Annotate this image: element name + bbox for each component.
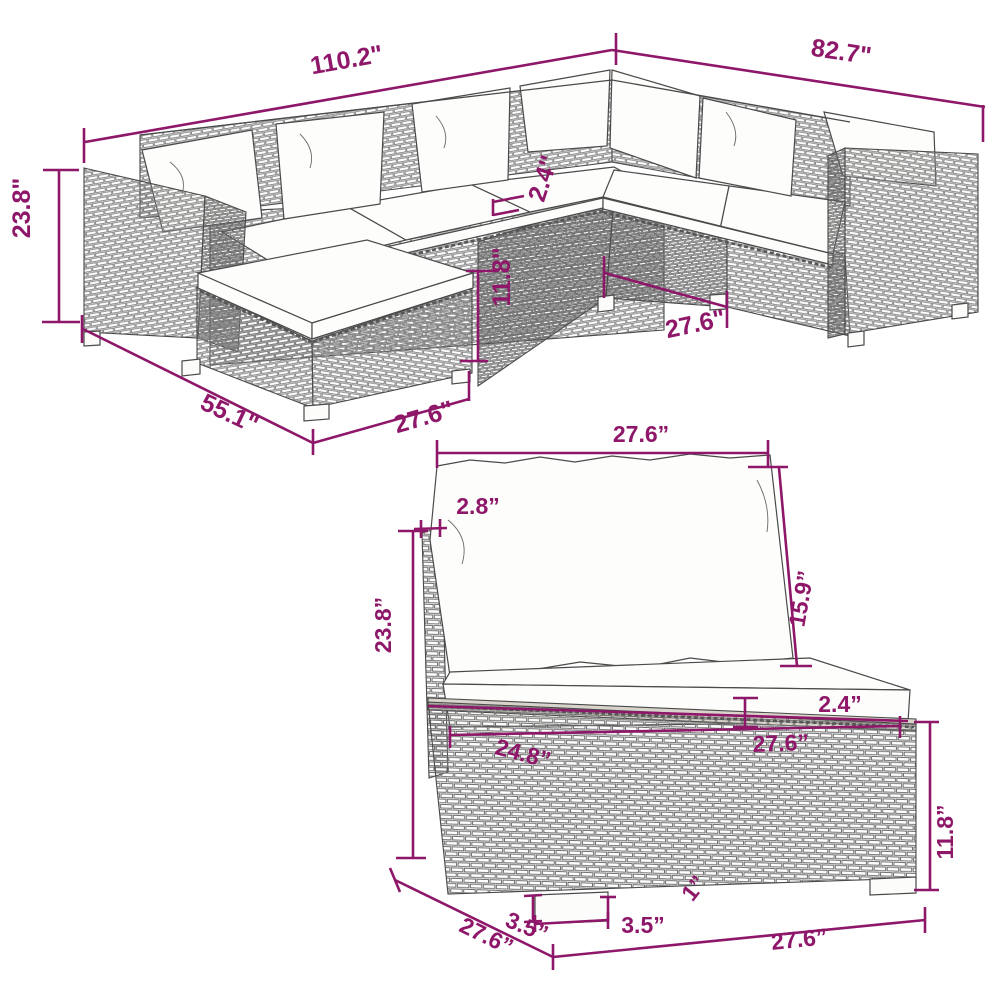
- right-armrest-front-edge: [828, 148, 845, 338]
- dim-total-depth-label: 82.7": [809, 34, 873, 71]
- pillow-2: [276, 112, 384, 219]
- dim-total-width-label: 110.2": [308, 40, 385, 80]
- dim-ottoman-width-label: 27.6": [391, 396, 457, 440]
- ottoman: [197, 240, 473, 408]
- pillow-3: [412, 88, 510, 192]
- dim-height-label: 23.8": [8, 178, 36, 239]
- dim-leg-width-label: 3.5”: [621, 912, 664, 938]
- dim-module-bottom-width-label: 27.6”: [770, 923, 829, 955]
- dim-seat-cushion-thickness-label: 2.4”: [818, 691, 861, 717]
- right-arm-front-leg: [848, 331, 864, 347]
- corner-base-leg: [598, 295, 614, 312]
- left-armrest: [84, 168, 205, 338]
- ottoman-left-leg: [182, 359, 200, 376]
- dim-section-width-label: 27.6": [663, 304, 728, 344]
- dim-chaise-depth-label: 55.1": [196, 388, 263, 439]
- dim-module-height: 23.8”: [370, 531, 428, 858]
- module-back-cushion: [430, 454, 793, 676]
- right-arm-back-leg: [952, 303, 968, 319]
- module-right-leg: [870, 877, 916, 895]
- diagram-svg: 110.2" 82.7" 23.8" 2.4" 11.8": [0, 0, 1000, 1000]
- module-drawing: [422, 454, 916, 924]
- dim-module-base-height: 11.8”: [914, 722, 958, 890]
- dimension-diagram: 110.2" 82.7" 23.8" 2.4" 11.8": [0, 0, 1000, 1000]
- dim-height: 23.8": [8, 170, 80, 322]
- dim-module-height-label: 23.8”: [370, 597, 396, 653]
- dim-frame-thickness-label: 2.8”: [456, 493, 499, 519]
- sectional-overview-drawing: [84, 70, 978, 421]
- dim-base-height-label: 11.8": [488, 247, 516, 306]
- ottoman-right-leg: [452, 369, 470, 384]
- dim-module-top-width-label: 27.6”: [613, 421, 669, 447]
- dim-module-base-height-label: 11.8”: [932, 805, 958, 860]
- ottoman-front-leg: [304, 404, 329, 421]
- dim-platform-width-label: 27.6”: [752, 729, 809, 757]
